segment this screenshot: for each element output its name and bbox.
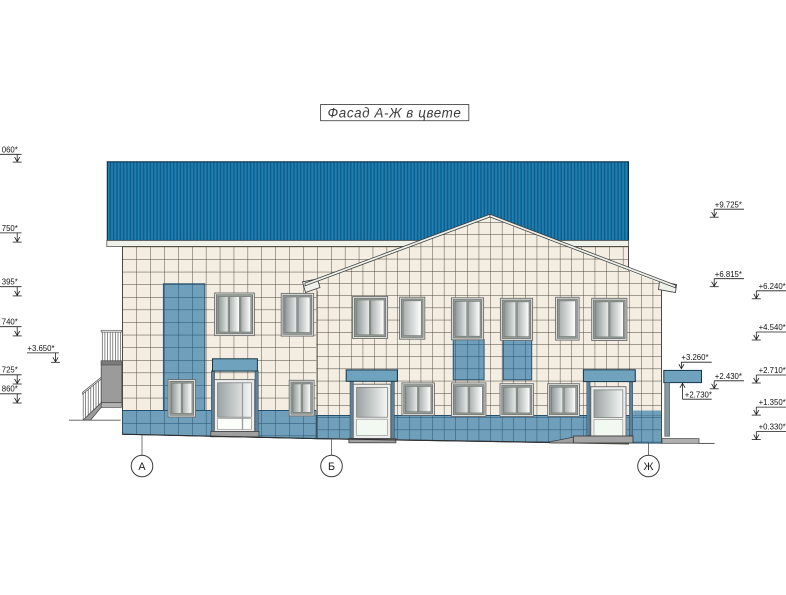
svg-text:060*: 060* — [2, 145, 18, 154]
svg-text:+2.430*: +2.430* — [715, 372, 742, 381]
svg-text:Б: Б — [328, 461, 335, 473]
svg-text:А: А — [138, 461, 146, 473]
svg-text:+0.330*: +0.330* — [759, 423, 786, 432]
svg-text:Фасад А-Ж в цвете: Фасад А-Ж в цвете — [328, 106, 462, 121]
svg-text:+3.260*: +3.260* — [681, 353, 708, 362]
svg-text:+4.540*: +4.540* — [759, 323, 786, 332]
svg-text:+2.730*: +2.730* — [685, 390, 712, 399]
svg-text:750*: 750* — [2, 224, 18, 233]
svg-text:+3.650*: +3.650* — [27, 344, 54, 353]
svg-text:+6.240*: +6.240* — [759, 282, 786, 291]
svg-text:+1.350*: +1.350* — [759, 398, 786, 407]
svg-text:395*: 395* — [2, 278, 18, 287]
svg-text:740*: 740* — [2, 318, 18, 327]
svg-text:+2.710*: +2.710* — [759, 366, 786, 375]
svg-text:Ж: Ж — [644, 461, 654, 473]
svg-text:725*: 725* — [2, 366, 18, 375]
svg-text:+6.815*: +6.815* — [715, 270, 742, 279]
svg-text:+9.725*: +9.725* — [715, 200, 742, 209]
svg-text:860*: 860* — [2, 385, 18, 394]
